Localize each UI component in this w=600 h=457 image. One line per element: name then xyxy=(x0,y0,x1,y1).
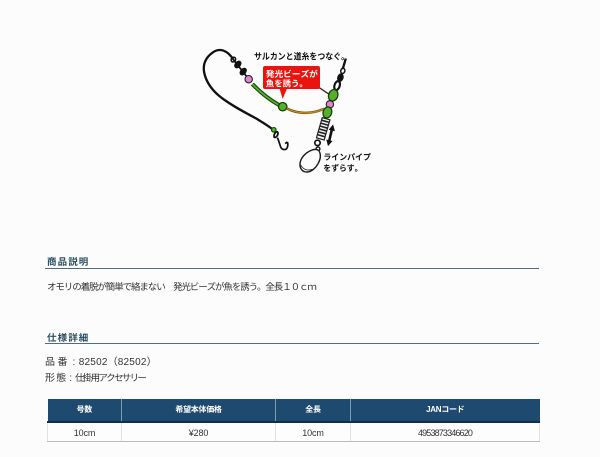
svg-text:サルカンと道糸をつなぐ。: サルカンと道糸をつなぐ。 xyxy=(254,51,349,61)
svg-text:魚を誘う。: 魚を誘う。 xyxy=(266,79,308,89)
svg-text:発光ビーズが: 発光ビーズが xyxy=(266,69,318,79)
svg-text:をずらす。: をずらす。 xyxy=(323,163,362,173)
svg-text:ラインパイプ: ラインパイプ xyxy=(323,152,371,162)
